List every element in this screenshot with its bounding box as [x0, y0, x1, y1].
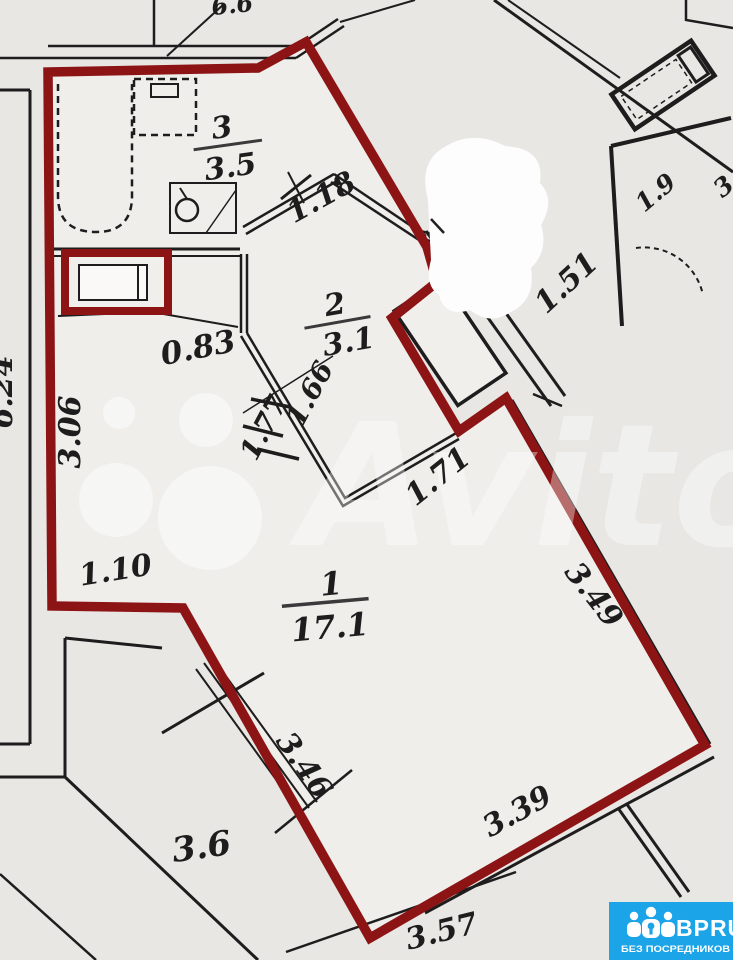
floor-plan-screenshot: Avito 6.6 1.18 1.51 1.9 3 0.83 1.66 1.77…	[0, 0, 733, 960]
bpru-logo: BPRU БЕЗ ПОСРЕДНИКОВ	[609, 902, 733, 960]
dimension-6-24: 6.24	[0, 355, 20, 428]
room-area: 3.5	[202, 146, 259, 188]
dimension-3-06: 3.06	[53, 395, 88, 468]
room-label-balcony: 3.6	[169, 823, 233, 871]
censor-blob	[425, 138, 548, 319]
red-window-inner	[79, 265, 147, 300]
censored-area	[425, 138, 548, 319]
watermark-text: Avito	[288, 388, 733, 586]
room-area: 17.1	[289, 605, 370, 650]
floor-plan-drawing: Avito 6.6 1.18 1.51 1.9 3 0.83 1.66 1.77…	[0, 0, 733, 960]
watermark-dot	[179, 393, 233, 447]
watermark-dot	[79, 463, 153, 537]
watermark-dot	[158, 466, 262, 570]
room-number: 1	[318, 564, 343, 604]
logo-tagline: БЕЗ ПОСРЕДНИКОВ	[621, 944, 730, 954]
logo-title: BPRU	[676, 915, 733, 941]
watermark-dot	[103, 397, 135, 429]
